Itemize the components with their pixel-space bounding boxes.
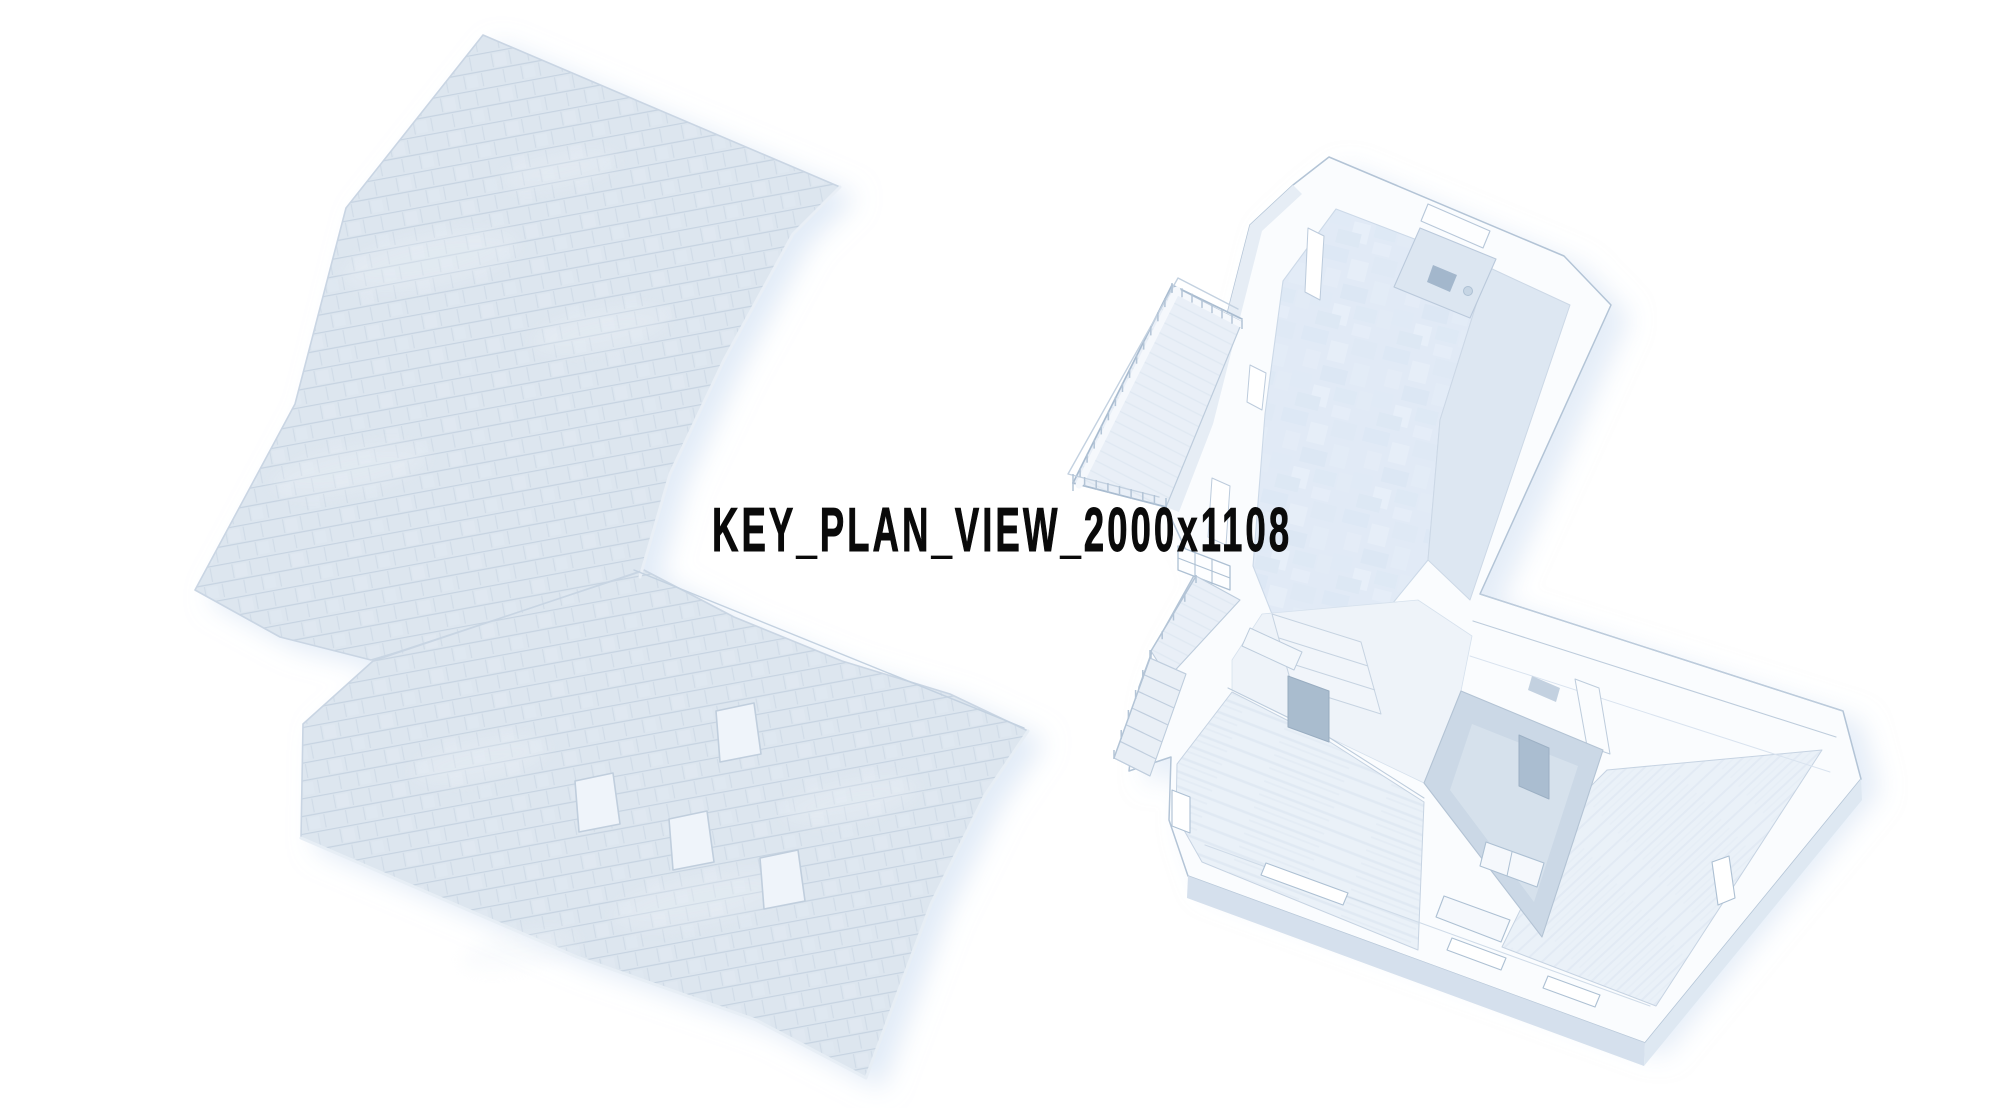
- svg-text:KEY_PLAN_VIEW_2000x1108: KEY_PLAN_VIEW_2000x1108: [712, 495, 1292, 564]
